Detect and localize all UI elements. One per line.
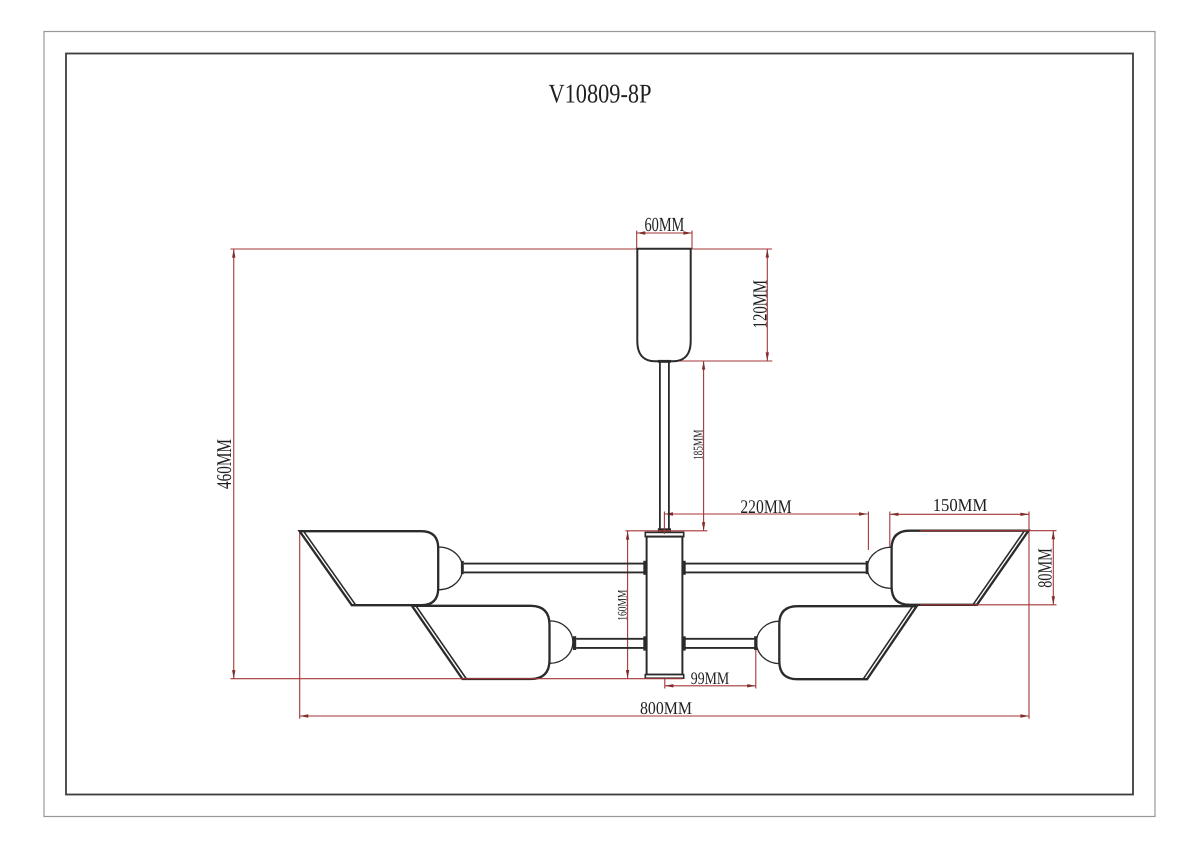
svg-text:460MM: 460MM xyxy=(212,439,236,489)
svg-text:V10809-8P: V10809-8P xyxy=(549,79,652,109)
svg-text:120MM: 120MM xyxy=(749,280,771,329)
svg-text:220MM: 220MM xyxy=(740,497,791,518)
svg-text:80MM: 80MM xyxy=(1035,548,1057,588)
svg-text:99MM: 99MM xyxy=(691,668,730,688)
svg-text:185MM: 185MM xyxy=(691,429,706,460)
svg-text:60MM: 60MM xyxy=(645,214,685,236)
svg-text:160MM: 160MM xyxy=(614,589,629,620)
svg-text:150MM: 150MM xyxy=(933,495,988,515)
svg-text:800MM: 800MM xyxy=(640,698,692,718)
